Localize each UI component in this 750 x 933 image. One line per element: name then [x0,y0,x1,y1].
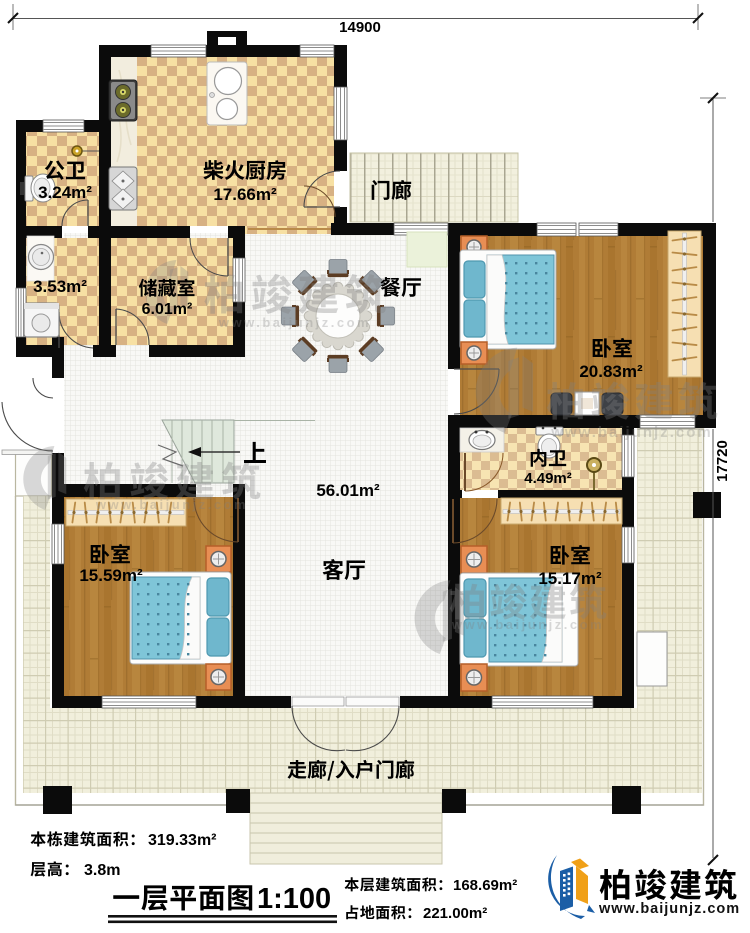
svg-text:15.59m²: 15.59m² [79,566,143,585]
svg-text:www.baijunjz.com: www.baijunjz.com [451,617,604,632]
svg-text:www.baijunjz.com: www.baijunjz.com [95,497,248,512]
svg-text:17.66m²: 17.66m² [213,185,277,204]
svg-text:www.baijunjz.com: www.baijunjz.com [218,315,371,330]
svg-text:3.8m: 3.8m [84,862,120,879]
svg-text:319.33m²: 319.33m² [148,832,217,849]
svg-text:3.24m²: 3.24m² [38,183,92,202]
svg-text:56.01m²: 56.01m² [316,481,380,500]
svg-text:6.01m²: 6.01m² [142,301,193,318]
svg-text:1:100: 1:100 [257,883,331,915]
svg-text:221.00m²: 221.00m² [423,905,487,922]
svg-text:17720: 17720 [714,440,731,482]
svg-text:168.69m²: 168.69m² [453,877,517,894]
svg-text:20.83m²: 20.83m² [579,362,643,381]
svg-text:14900: 14900 [339,19,381,36]
svg-text:www.baijunjz.com: www.baijunjz.com [550,424,712,441]
svg-text:4.49m²: 4.49m² [524,470,572,487]
svg-text:www.baijunjz.com: www.baijunjz.com [598,901,740,917]
svg-text:3.53m²: 3.53m² [33,277,87,296]
svg-text:15.17m²: 15.17m² [538,569,602,588]
